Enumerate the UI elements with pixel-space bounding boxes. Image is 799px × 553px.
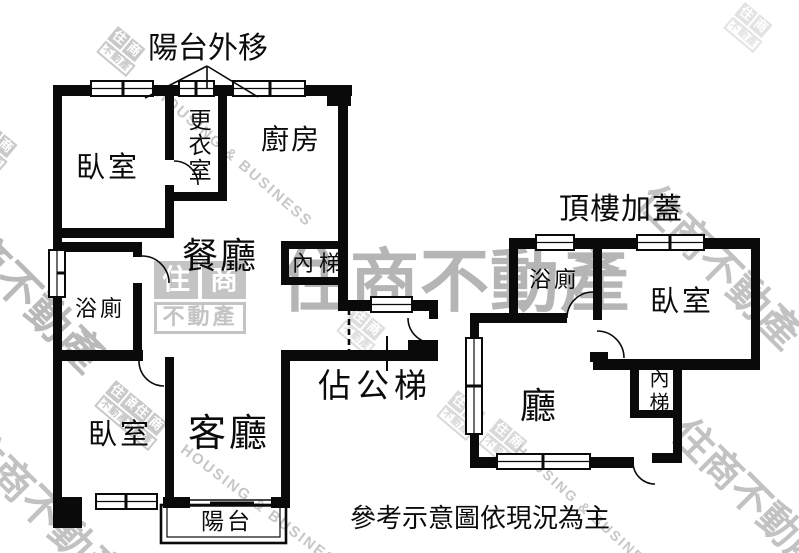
room-label-dining: 餐廳 [182, 238, 258, 276]
annotation-lines [145, 66, 387, 371]
room-label-bedroom-bottom: 臥室 [88, 420, 152, 450]
room-label-closet: 更衣室 [185, 108, 209, 183]
room-label-bedroom-top: 臥室 [76, 153, 140, 183]
room-label-bathroom-right: 浴廁 [529, 268, 579, 291]
walls-right-unit [470, 238, 760, 468]
room-label-bathroom-left: 浴廁 [75, 297, 125, 320]
annotation-balcony-moved: 陽台外移 [148, 33, 268, 65]
annotation-public-stair: 佔公梯 [318, 370, 432, 405]
room-label-inner-stair-right: 內梯 [646, 368, 667, 416]
room-label-bedroom-right: 臥室 [650, 287, 714, 317]
floor-plan-svg [0, 0, 799, 553]
room-label-balcony: 陽台 [201, 510, 253, 534]
footer-note: 參考示意圖依現況為主 [350, 505, 610, 532]
floor-plan-image: 住商 不動產 住商 不動產 HOUSING & BUSINESS 商不動產 住商… [0, 0, 799, 553]
right-plan-title: 頂樓加蓋 [559, 194, 683, 226]
room-label-kitchen: 廚房 [261, 126, 321, 155]
room-label-inner-stair-left: 內梯 [292, 252, 346, 275]
room-label-hall: 廳 [520, 388, 556, 426]
room-label-living: 客廳 [188, 415, 270, 455]
